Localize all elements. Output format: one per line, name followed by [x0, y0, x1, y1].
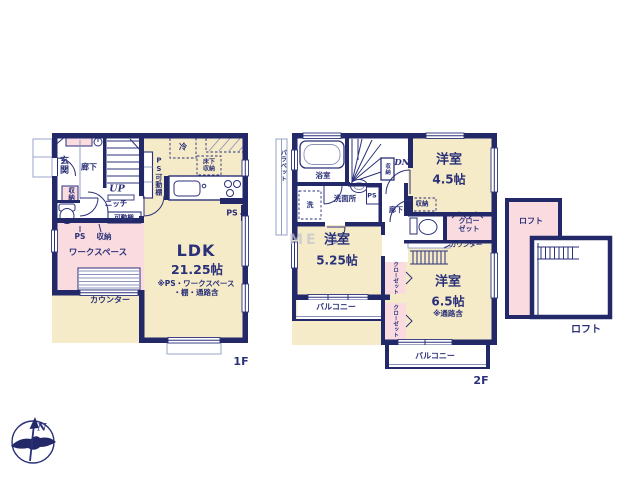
room-size-525: 5.25帖: [316, 254, 358, 267]
room-label-hallway-2f: 廊下: [389, 207, 403, 215]
compass: [11, 417, 56, 463]
kitchen-counter: [164, 176, 248, 204]
stairs-down-label: DN: [394, 159, 409, 169]
floorplan-page: ME G 玄関 廊下 UP PS可動棚 ニッチ 可動棚 収納 PS 収納 ワーク…: [0, 0, 640, 480]
label-entry-closet: 収納: [66, 187, 73, 201]
room-label-bath: 浴室: [316, 172, 331, 180]
room-label-hallway-1f: 廊下: [81, 164, 97, 173]
label-stair-storage: 収納: [384, 163, 390, 175]
label-ps-1f: PS: [75, 233, 86, 241]
label-closet-right: クローゼット: [457, 218, 482, 234]
room-note-65: ※通路含: [433, 310, 463, 318]
label-storage-2f: 収納: [416, 200, 429, 207]
label-closet-mid2: クローゼット: [392, 305, 398, 338]
floor-label-2f: 2F: [473, 375, 488, 387]
label-balcony-left: バルコニー: [316, 304, 356, 313]
compass-north-label: N: [37, 422, 46, 433]
room-label-genkan: 玄関: [58, 156, 68, 175]
room-size-ldk: 21.25帖: [171, 263, 223, 277]
label-storage-1f: 収納: [97, 233, 112, 241]
label-balcony-bottom: バルコニー: [415, 353, 455, 362]
label-washer: 洗: [307, 202, 314, 210]
toilet-2f: [410, 218, 437, 235]
terrace-step: [167, 343, 221, 354]
label-ps-right: PS: [226, 210, 238, 219]
compass-bird-icon: [11, 436, 56, 450]
stairs-up-label: UP: [109, 185, 124, 196]
label-ps-shelf: PS可動棚: [154, 156, 162, 196]
label-parapet: パラペット: [279, 150, 286, 183]
room-label-workspace: ワークスペース: [69, 249, 127, 259]
label-floor-storage: 床下収納: [202, 159, 217, 172]
room-label-45: 洋室: [436, 154, 462, 169]
room-label-65: 洋室: [435, 276, 461, 291]
label-niche: ニッチ: [105, 200, 128, 208]
room-label-525: 洋室: [324, 234, 350, 249]
room-label-washroom: 洗面所: [334, 195, 357, 203]
room-label-ldk: LDK: [177, 242, 216, 260]
room-note-ldk-2: ・棚・通路含: [174, 289, 219, 297]
label-counter-2f: カウンター: [450, 241, 483, 248]
label-loft-outer: ロフト: [571, 324, 601, 335]
entrance-porch: [33, 139, 52, 177]
label-counter-1f: カウンター: [90, 297, 130, 306]
label-shelf: 可動棚: [114, 214, 134, 221]
label-loft-inner: ロフト: [519, 218, 543, 227]
label-closet-mid1: クローゼット: [392, 262, 398, 295]
label-fridge: 冷: [179, 144, 187, 153]
kitchen-sink: [174, 181, 200, 196]
room-size-45: 4.5帖: [432, 173, 465, 186]
label-ps-2f: PS: [367, 192, 376, 199]
counter-strip-2f: [408, 243, 450, 248]
room-size-65: 6.5帖: [431, 295, 464, 308]
floor-label-1f: 1F: [233, 356, 248, 368]
bathtub: [300, 141, 344, 168]
workspace-counter: [78, 268, 140, 290]
